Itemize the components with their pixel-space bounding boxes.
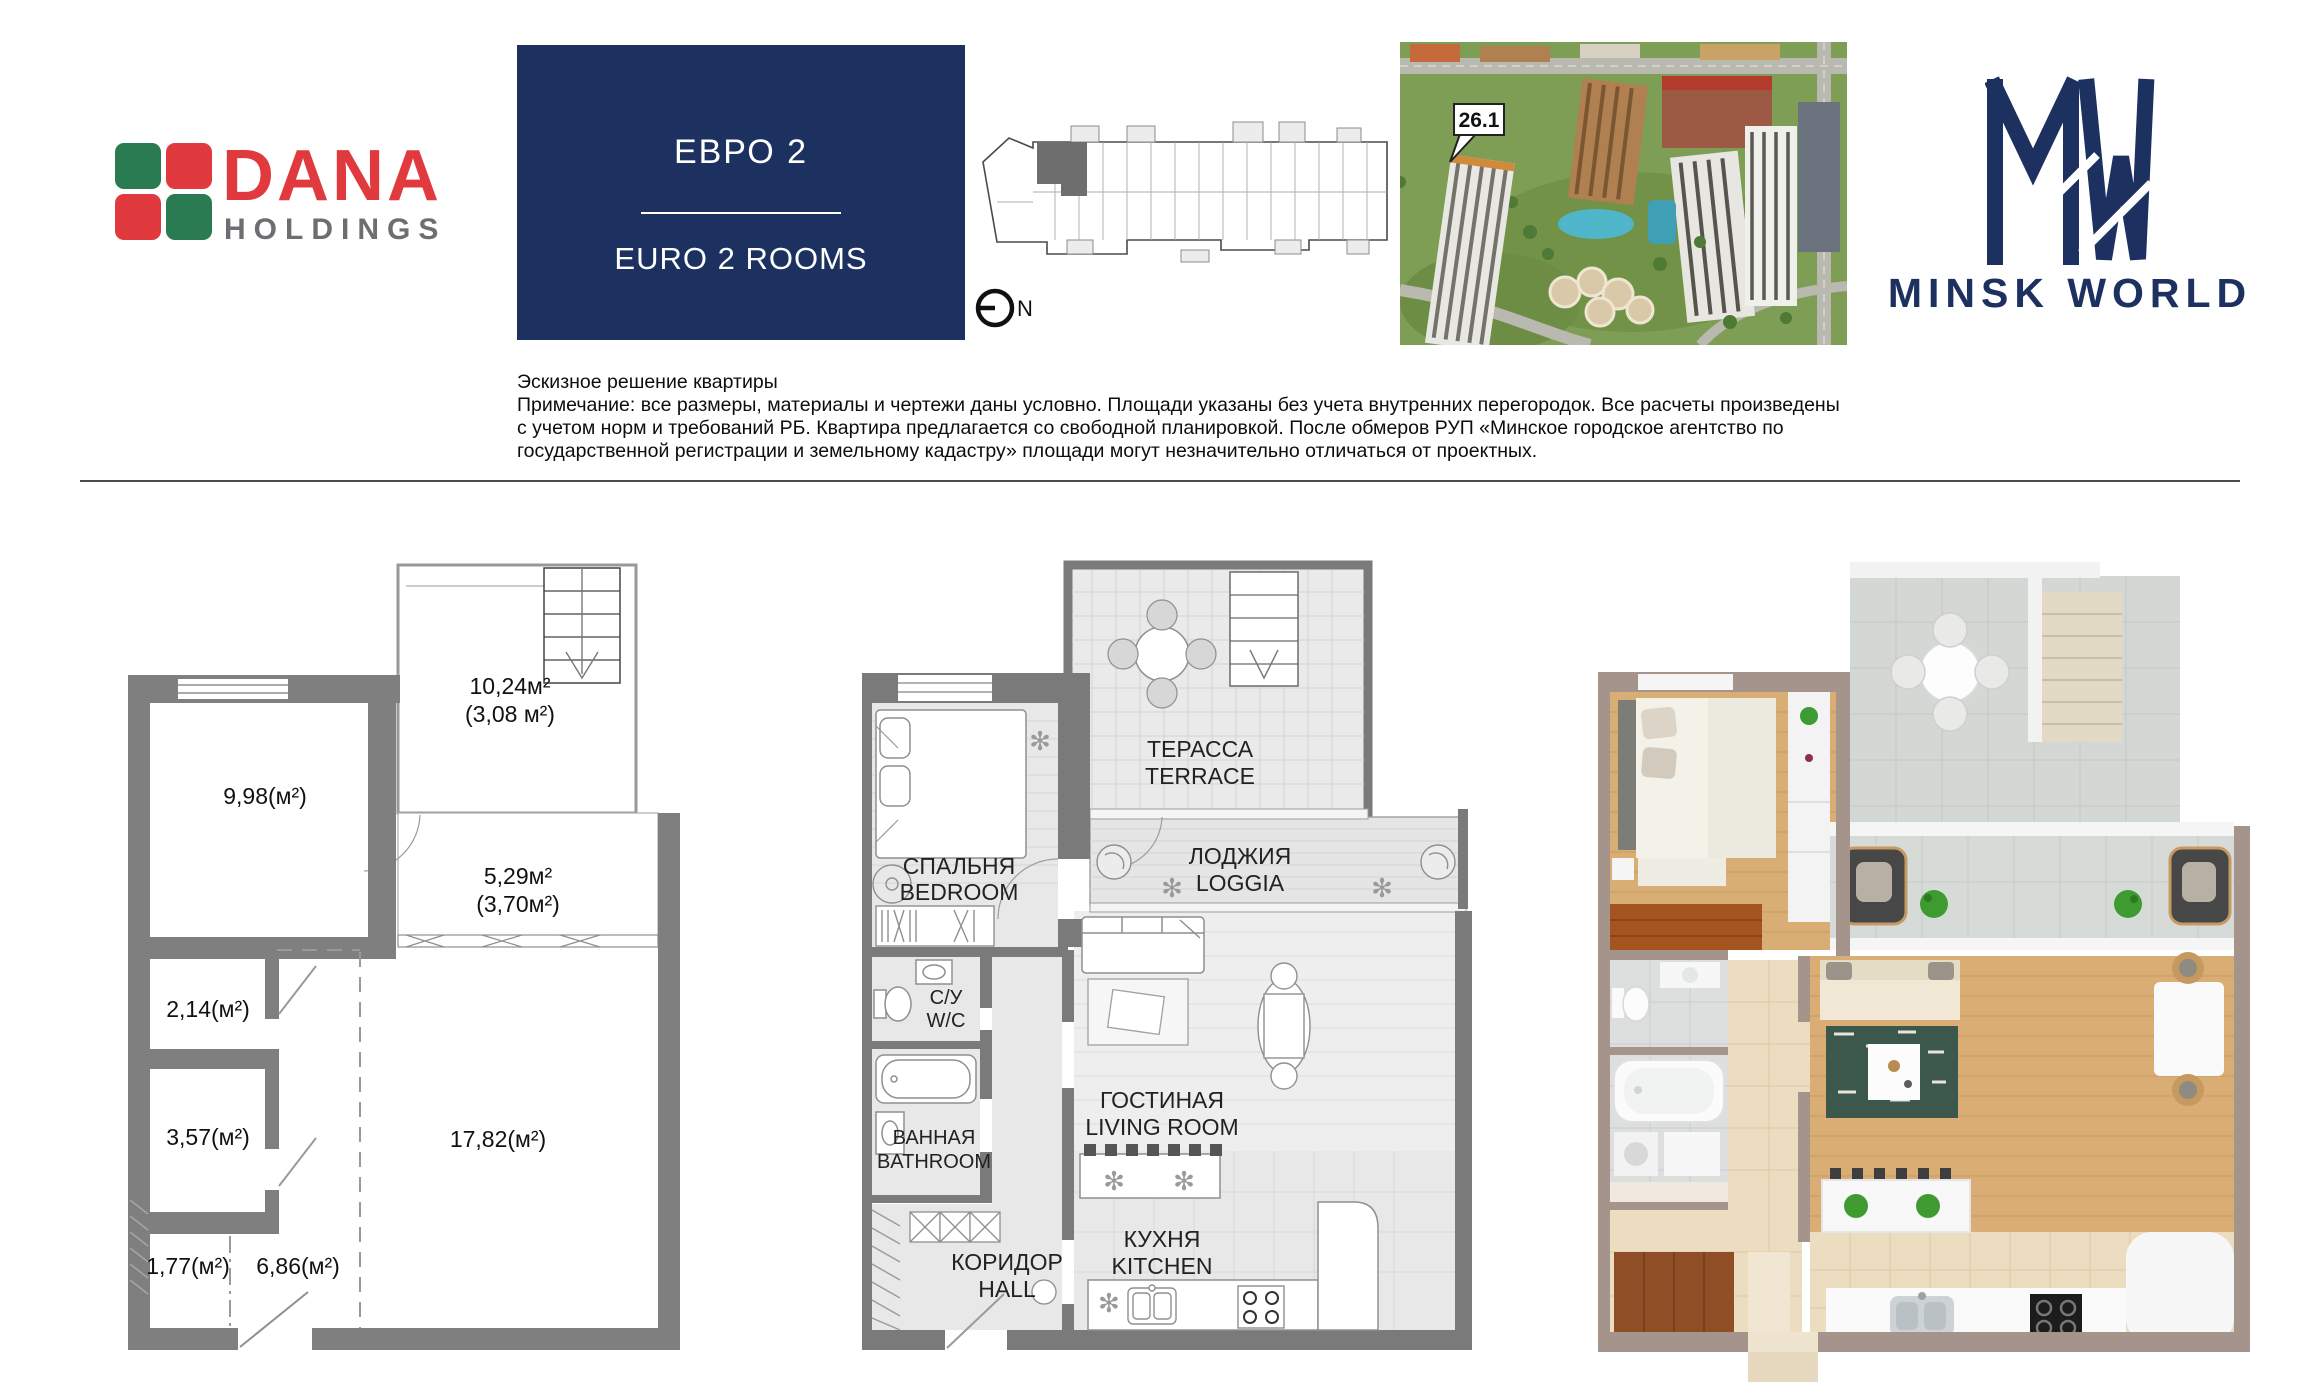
room-label-bathroom-ru: ВАННАЯ	[893, 1127, 976, 1149]
area-label-wc: 2,14(м²)	[166, 996, 250, 1022]
logo-square-red-icon	[115, 194, 161, 240]
disclaimer-line: государственной регистрации и земельному…	[517, 440, 1867, 463]
toilet-icon	[874, 987, 911, 1021]
room-label-hall-ru: КОРИДОР	[951, 1249, 1063, 1275]
area-label-loggia-counted: (3,70м²)	[476, 891, 560, 917]
building-key-plan: N	[975, 92, 1395, 342]
room-label-bedroom-en: BEDROOM	[900, 879, 1019, 905]
compass-north-label: N	[1017, 296, 1033, 321]
plant-icon: ✻	[1098, 1288, 1120, 1318]
room-label-bathroom-en: BATHROOM	[877, 1151, 991, 1173]
plant-icon: ✻	[1173, 1166, 1195, 1196]
console-shelf-icon	[1788, 692, 1830, 922]
rug-3d-icon	[1826, 1026, 1958, 1118]
room-label-loggia-en: LOGGIA	[1196, 870, 1285, 896]
logo-square-red-icon	[166, 143, 212, 189]
building-number-label: 26.1	[1459, 109, 1500, 132]
section-divider	[80, 480, 2240, 482]
kitchen-sink-3d-icon	[1890, 1292, 1954, 1336]
loggia-armchair-icon	[2170, 848, 2230, 924]
mw-monogram-icon	[1985, 65, 2155, 265]
room-label-kitchen-en: KITCHEN	[1112, 1253, 1213, 1279]
plant-icon: ✻	[1161, 873, 1183, 903]
title-divider	[641, 212, 841, 214]
disclaimer-line: с учетом норм и требований РБ. Квартира …	[517, 417, 1867, 440]
minsk-world-wordmark: MINSK WORLD	[1880, 270, 2260, 317]
stairs-icon	[544, 568, 620, 683]
apartment-type-ru: ЕВРО 2	[517, 133, 965, 172]
minsk-world-logo: MINSK WORLD	[1880, 65, 2260, 325]
aerial-site-render: 26.1	[1400, 42, 1847, 345]
kitchen-sink-icon	[1128, 1285, 1176, 1324]
sofa-icon	[1082, 917, 1204, 973]
dana-logo-name: DANA	[222, 140, 442, 212]
loggia-armchair-icon	[1842, 848, 1906, 924]
area-label-bedroom: 9,98(м²)	[223, 783, 307, 809]
area-label-living: 17,82(м²)	[450, 1126, 546, 1152]
floor-plan-dimensional: 10,24м² (3,08 м²) 5,29м² (3,70м²) 9,98(м…	[120, 552, 690, 1367]
wc-sink-icon	[916, 960, 952, 984]
toilet-3d-icon	[1612, 987, 1649, 1021]
room-label-terrace-en: TERRACE	[1145, 763, 1255, 789]
plant-icon	[2114, 890, 2142, 918]
room-label-terrace-ru: ТЕРАССА	[1147, 736, 1254, 762]
room-label-wc-en: W/C	[927, 1010, 966, 1032]
bath-cabinet-icon	[1664, 1132, 1720, 1176]
disclaimer-line: Примечание: все размеры, материалы и чер…	[517, 394, 1867, 417]
floor-plan-furnished: ✻ ✻	[862, 552, 1502, 1400]
dresser-icon	[1610, 904, 1762, 950]
room-label-wc-ru: С/У	[930, 987, 963, 1009]
room-label-living-ru: ГОСТИНАЯ	[1100, 1087, 1224, 1113]
washer-icon	[1614, 1132, 1658, 1176]
rug-icon	[1088, 979, 1188, 1045]
flyer-page: DANA HOLDINGS ЕВРО 2 EURO 2 ROOMS N	[0, 0, 2320, 1400]
room-label-kitchen-ru: КУХНЯ	[1124, 1226, 1201, 1252]
closet-icon	[910, 1212, 1000, 1242]
apartment-type-en: EURO 2 ROOMS	[517, 241, 965, 277]
vanity-3d-icon	[1660, 962, 1720, 988]
dana-logo: DANA HOLDINGS	[115, 143, 495, 253]
room-label-living-en: LIVING ROOM	[1085, 1114, 1238, 1140]
area-label-terrace-counted: (3,08 м²)	[465, 701, 555, 727]
area-label-bathroom: 3,57(м²)	[166, 1124, 250, 1150]
bathtub-icon	[876, 1055, 976, 1103]
logo-square-green-icon	[166, 194, 212, 240]
plant-icon: ✻	[1371, 873, 1393, 903]
logo-square-green-icon	[115, 143, 161, 189]
area-label-hall: 6,86(м²)	[256, 1253, 340, 1279]
area-label-loggia-full: 5,29м²	[484, 863, 553, 889]
room-label-loggia-ru: ЛОДЖИЯ	[1189, 843, 1291, 869]
stairs-3d-icon	[2042, 592, 2122, 742]
compass-icon: N	[977, 291, 1033, 325]
plant-icon: ✻	[1103, 1166, 1125, 1196]
dana-logo-subtitle: HOLDINGS	[224, 215, 446, 245]
plant-icon: ✻	[1029, 726, 1051, 756]
apartment-type-title-box: ЕВРО 2 EURO 2 ROOMS	[517, 45, 965, 340]
sofa-3d-icon	[1820, 960, 1960, 1020]
bathtub-3d-icon	[1614, 1060, 1724, 1122]
floor-plan-3d-render	[1598, 552, 2270, 1400]
room-label-bedroom-ru: СПАЛЬНЯ	[903, 853, 1015, 879]
disclaimer-title: Эскизное решение квартиры	[517, 371, 1867, 394]
room-label-hall-en: HALL	[978, 1276, 1036, 1302]
stove-icon	[1238, 1286, 1284, 1328]
bed-3d-icon	[1618, 698, 1776, 886]
area-label-hall-small: 1,77(м²)	[146, 1253, 230, 1279]
disclaimer-block: Эскизное решение квартиры Примечание: вс…	[517, 371, 1867, 463]
hall-runner-rug	[1748, 1252, 1790, 1340]
plant-icon	[1920, 890, 1948, 918]
bed-icon	[876, 710, 1026, 858]
area-label-terrace-full: 10,24м²	[469, 673, 550, 699]
stairs-icon	[1230, 572, 1298, 686]
